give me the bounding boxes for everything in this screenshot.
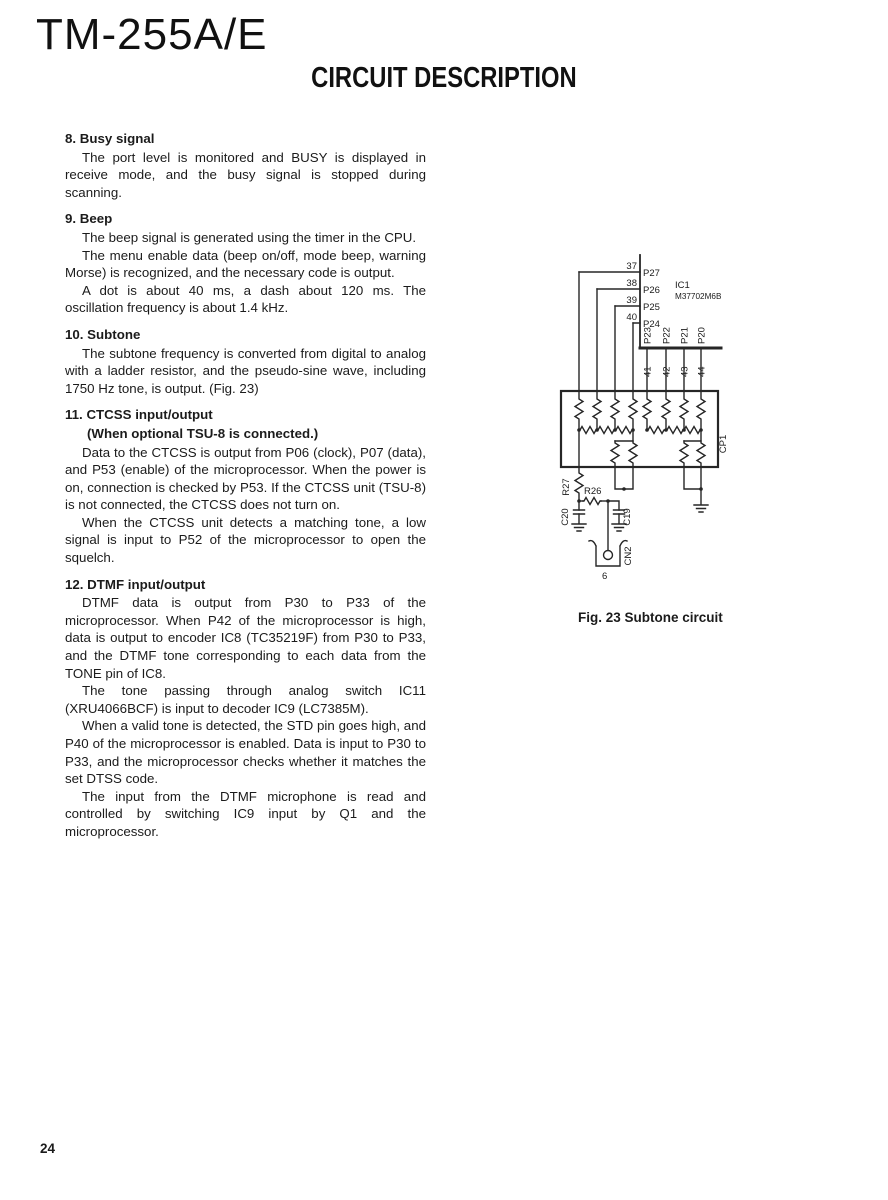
pin-name: P21 <box>680 327 691 344</box>
paragraph: When the CTCSS unit detects a matching t… <box>65 514 426 567</box>
pin-number: 42 <box>662 366 673 377</box>
paragraph: The port level is monitored and BUSY is … <box>65 149 426 202</box>
section-subheading-ctcss: (When optional TSU-8 is connected.) <box>65 425 426 443</box>
pin-number: 38 <box>626 278 637 289</box>
paragraph: Data to the CTCSS is output from P06 (cl… <box>65 444 426 514</box>
paragraph: A dot is about 40 ms, a dash about 120 m… <box>65 282 426 317</box>
capacitor-ref: C19 <box>622 508 633 525</box>
resistor-ref: R27 <box>561 478 572 495</box>
ic-ref: IC1 <box>675 280 690 291</box>
connector-pin-number: 6 <box>602 571 607 582</box>
paragraph: The subtone frequency is converted from … <box>65 345 426 398</box>
figure-caption: Fig. 23 Subtone circuit <box>578 610 723 625</box>
manual-page: TM-255A/E CIRCUIT DESCRIPTION 8. Busy si… <box>0 0 888 1200</box>
pin-number: 40 <box>626 312 637 323</box>
page-title: CIRCUIT DESCRIPTION <box>311 62 577 95</box>
section-heading-busy-signal: 8. Busy signal <box>65 130 426 148</box>
resistor-ref: R26 <box>584 486 601 497</box>
paragraph: The beep signal is generated using the t… <box>65 229 426 247</box>
paragraph: When a valid tone is detected, the STD p… <box>65 717 426 787</box>
connector-ref: CN2 <box>623 546 634 565</box>
pin-number: 37 <box>626 261 637 272</box>
pin-name: P25 <box>643 302 660 313</box>
pin-number: 43 <box>680 366 691 377</box>
network-ref: CP1 <box>718 435 729 453</box>
pin-number: 44 <box>697 366 708 377</box>
subtone-circuit-diagram: 37 38 39 40 P27 P26 P25 P24 IC1 M37702M6… <box>548 248 758 593</box>
paragraph: The menu enable data (beep on/off, mode … <box>65 247 426 282</box>
pin-name: P27 <box>643 268 660 279</box>
circuit-wires <box>561 255 721 566</box>
section-heading-ctcss: 11. CTCSS input/output <box>65 406 426 424</box>
page-title-wrap: CIRCUIT DESCRIPTION <box>0 62 888 95</box>
section-heading-beep: 9. Beep <box>65 210 426 228</box>
text-column: 8. Busy signal The port level is monitor… <box>65 130 426 841</box>
pin-number: 39 <box>626 295 637 306</box>
pin-number: 41 <box>643 366 654 377</box>
circuit-labels: 37 38 39 40 P27 P26 P25 P24 IC1 M37702M6… <box>560 261 729 582</box>
ic-part-number: M37702M6B <box>675 292 722 301</box>
pin-name: P22 <box>662 327 673 344</box>
pin-name: P20 <box>697 327 708 344</box>
pin-name: P26 <box>643 285 660 296</box>
paragraph: DTMF data is output from P30 to P33 of t… <box>65 594 426 682</box>
paragraph: The tone passing through analog switch I… <box>65 682 426 717</box>
section-heading-dtmf: 12. DTMF input/output <box>65 576 426 594</box>
section-heading-subtone: 10. Subtone <box>65 326 426 344</box>
model-title: TM-255A/E <box>36 10 268 60</box>
paragraph: The input from the DTMF microphone is re… <box>65 788 426 841</box>
capacitor-ref: C20 <box>560 508 571 525</box>
page-number: 24 <box>40 1141 55 1156</box>
pin-name: P23 <box>643 327 654 344</box>
